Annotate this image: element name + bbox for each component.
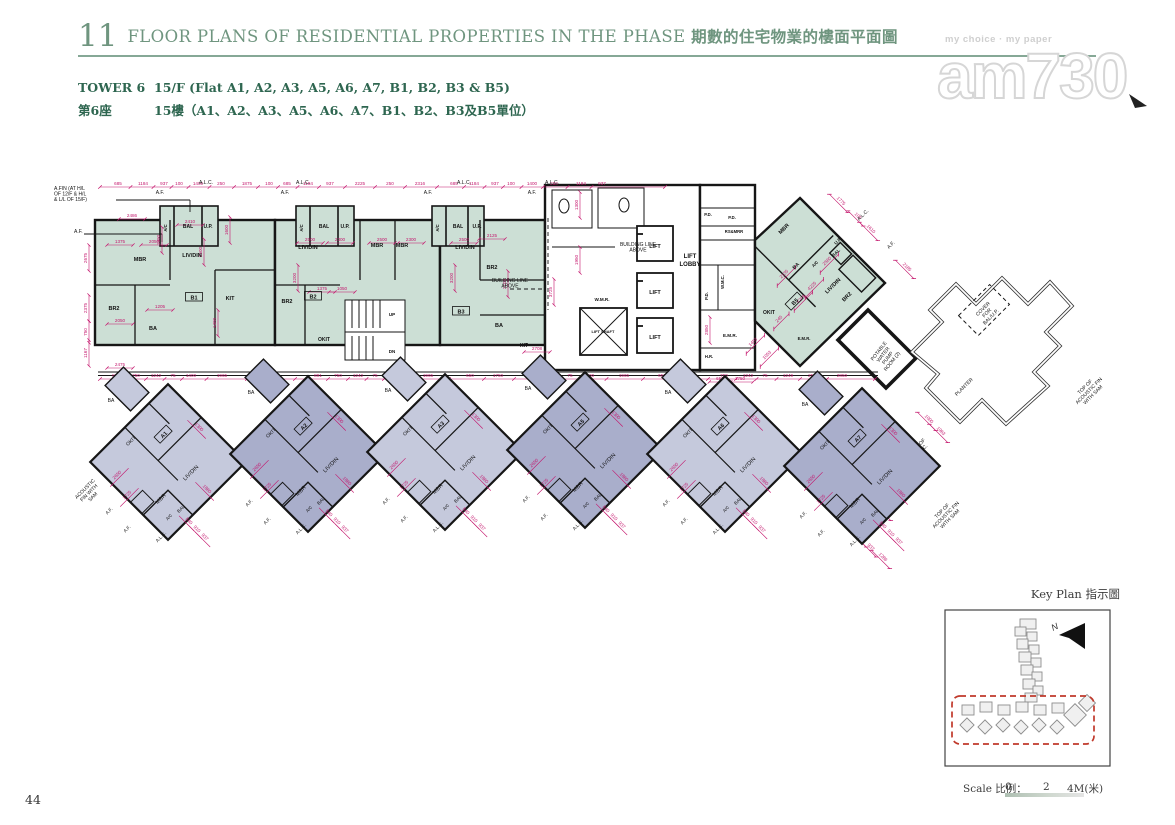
dimension-label: 100 [265,181,273,186]
dimension-label: 650 [466,373,474,378]
annotation-label: ABOVE [501,284,519,290]
dimension-label: 1053 [762,349,773,360]
dimension-label: 2500 [377,237,388,242]
dimension-label: 1286 [878,552,889,563]
annotation-label: A.F. [816,528,825,537]
unit-A5: BAOKITLIV/DINMBRBALA/C265017251860130084… [507,355,663,535]
scale-tick-0: 0 [1005,781,1012,793]
annotation-label: A.F. [281,190,290,196]
staircase [345,300,405,360]
room-label: A/C [163,224,168,231]
dimension-label: 1963 [936,426,947,437]
dimension-label: 1400 [527,181,538,186]
annotation: A.F. [74,229,83,235]
room-label: U.P. [203,224,213,230]
dimension-label: 2185 [902,262,913,273]
annotation-label: A.F. [122,524,131,533]
annotation: TOP OFACOUSTIC FINWITH SAM [928,496,965,533]
dimension-label: 1400 [186,373,197,378]
dimension-label: 2500 [305,237,316,242]
dimension-label: 1242 [353,373,364,378]
dimension-label: 3725 [548,286,553,297]
annotation-label: A.F. [798,510,807,519]
room-label: LIFT [649,290,661,296]
dimension-label: 2316 [415,181,426,186]
room-label: LIV/DIN [455,245,475,251]
dimension-label: 910 [193,524,202,533]
annotation-label: A.L.C. [296,180,310,186]
room-label: BA [525,386,532,392]
room-label: BA [248,390,255,396]
dimension-label: 937 [491,181,499,186]
floor-label-zh: 15樓（A1、A2、A3、A5、A6、A7、B1、B2、B3及B5單位） [154,100,534,119]
dimension-label: 1750 [735,376,746,381]
room-label: MBR [396,243,409,249]
annotation: A.L.C. [856,208,870,222]
page-title-en: FLOOR PLANS OF RESIDENTIAL PROPERTIES IN… [127,27,685,46]
room-label: LOBBY [680,262,701,268]
unit-label-text: B2 [309,295,316,301]
dimension-label: 1375 [317,286,328,291]
unit-A3: BAOKITLIV/DINMBRBALA/C265017251860130084… [367,357,523,537]
annotation: A.F. [156,190,165,196]
dimension-label: 2850 [837,373,848,378]
room-label: OKIT [318,337,330,343]
dimension-label: 1950 [574,254,579,265]
annotation-label: A.F. [539,512,548,521]
dimension-label: 750 [334,373,342,378]
dimension-label: 2475 [115,362,126,367]
dimension-label: 2500 [459,237,470,242]
room-label: BR2 [281,299,292,305]
dimension-label: 1000 [924,414,935,425]
annotation-label: A.L.C. [199,180,213,186]
dimension-label: 937 [618,520,627,529]
annotation-label: ABOVE [629,248,647,254]
page-number: 44 [25,792,41,807]
room-label: A/C [299,224,304,231]
annotation-label: A.F. [262,516,271,525]
unit-A1: BAOKITLIV/DINMBRBALA/C265017251860130084… [90,367,246,547]
scale-bar [1005,793,1084,797]
annotation: A.FIN (AT H/LOF 12/F & H/L& L/L OF 15/F) [54,186,87,203]
dimension-label: 685 [114,181,122,186]
annotation: A.L.C. [545,180,559,186]
room-label: LIV/DIN [298,245,318,251]
scale-tick-1: 2 [1043,781,1050,793]
room-label: LIFT [649,244,661,250]
dimension-label: 1965 [217,373,228,378]
annotation-label: A.F. [104,506,113,515]
dimension-label: 2300 [406,237,417,242]
dimension-label: 1965 [423,373,434,378]
annotation: A.L.C. [296,180,310,186]
section-number: 11 [78,18,117,54]
room-label: KIT [520,343,528,349]
dimension: 2185 [893,255,919,281]
annotation-label: A.F. [74,229,83,235]
room-label: BA [108,398,115,404]
annotation-label: A.F. [399,514,408,523]
room-label: RS&MRR [725,229,743,234]
room-label: UP [389,312,395,317]
dimension-label: 910 [610,512,619,521]
dimension-label: 840 [742,508,751,517]
room-label: MBR [371,243,384,249]
room-label: BAL [453,224,463,230]
dimension-label: 1300 [574,199,579,210]
dimension-label: 1775 [836,196,847,207]
annotation-label: A.L.C. [856,208,870,222]
room-label: LIFT [684,254,697,260]
dimension-label: 937 [598,181,606,186]
room-label: E.M.R. [798,336,811,341]
annotation: A.F. [281,190,290,196]
dimension-label: 840 [602,504,611,513]
room-label: W.M.C. [720,275,725,289]
dimension-label: 2708 [532,346,543,351]
logo-arrow-icon [1129,94,1147,108]
annotation-label: A.F. [528,190,537,196]
dimension-label: 840 [879,520,888,529]
dimension-label: 910 [333,516,342,525]
dimension-label: 75 [170,373,176,378]
dimension-label: 937 [201,532,210,541]
room-label: BA [802,402,809,408]
dimension-label: 100 [175,181,183,186]
dimension-label: 1205 [155,304,166,309]
dimension-label: 2850 [704,324,709,335]
annotation-label: A.F. [244,498,253,507]
dimension-label: 75 [762,373,768,378]
dimension-label: 840 [325,508,334,517]
dimension-label: 3200 [292,272,297,283]
annotation: A.F. [886,240,896,250]
dimension-label: 1375 [115,239,126,244]
dimension-label: 2486 [127,213,138,218]
dimension: 2475 [105,362,134,370]
dimension-label: 937 [341,524,350,533]
room-label: H.R. [705,354,713,359]
dimension-label: 1242 [151,373,162,378]
dimension-label: 750 [83,328,88,336]
dimension-label: 1610 [866,224,877,235]
dimension-label: 910 [887,528,896,537]
annotation: TOP OFACOUSTIC FINWITH SAM [1071,372,1108,409]
dimension: 2675 [83,243,91,272]
dimension-label: 1600 [224,224,229,235]
dimension-label: 1184 [138,181,148,186]
room-label: DN [389,349,396,354]
unit-A2: BAOKITLIV/DINMBRBALA/C265017251860130084… [230,359,386,539]
unit-label-text: B3 [457,310,464,316]
dimension-label: 2050 [115,318,126,323]
unit-label-text: B1 [190,296,197,302]
dimension-label: 840 [462,506,471,515]
room-label: BR2 [486,265,497,271]
dimension-label: 1965 [619,373,630,378]
dimension-label: 1750 [493,373,504,378]
annotation: A.F. [424,190,433,196]
annotation-label: A.F. [521,494,530,503]
dimension-label: 840 [185,516,194,525]
floor-label-en: 15/F (Flat A1, A2, A3, A5, A6, A7, B1, B… [154,80,510,95]
annotation-label: A.F. [156,190,165,196]
dimension: 2375 [83,293,91,322]
dimension-label: 910 [470,514,479,523]
room-label: P.D. [728,215,736,220]
annotation: A.F. [528,190,537,196]
annotation-label: A.F. [886,240,896,250]
floor-plan: 6851184937100140025018751006851184937222… [40,160,1140,590]
room-label: MBR [134,257,147,263]
room-label: BA [665,390,672,396]
room-label: A/C [435,224,440,231]
dimension-label: 937 [478,522,487,531]
room-label: LIFT SHAFT [592,329,615,334]
page-header: 11FLOOR PLANS OF RESIDENTIAL PROPERTIES … [78,18,898,54]
am730-watermark: my choice · my paper am730 [933,16,1173,116]
dimension-label: 937 [160,181,168,186]
room-label: P.D. [704,212,712,217]
room-label: W.M.R. [594,297,609,302]
dimension-label: 891 [314,373,322,378]
dimension-label: 250 [217,181,225,186]
dimension-label: 3200 [449,272,454,283]
dimension-label: 2225 [355,181,366,186]
room-label: BR2 [108,306,119,312]
dimension-label: 2125 [487,233,498,238]
room-label: E.M.R. [723,333,737,338]
dimension-label: 1249 [783,373,794,378]
annotation-label: A.F. [424,190,433,196]
dimension-label: 2375 [83,302,88,313]
tower-label-en: TOWER 6 [78,80,154,95]
room-label: BA [149,326,157,332]
unit-A7: BAOKITLIV/DINMBRBALA/C265017251860130084… [784,371,940,551]
planter-outline [912,278,1072,424]
room-label: LIFT [649,335,661,341]
room-label: BAL [319,224,329,230]
dimension: 1053 [755,343,781,369]
dimension-label: 910 [750,516,759,525]
dimension-label: 1050 [337,286,348,291]
dimension-label: 937 [895,536,904,545]
dimension-label: 2675 [83,252,88,263]
annotation: PLANTER [954,377,975,398]
dimension-label: 2300 [335,237,346,242]
annotation: A.L.C. [457,180,471,186]
room-label: U.P. [472,224,482,230]
room-label: U.P. [340,224,350,230]
tower-label-zh: 第6座 [78,100,154,119]
dimension-label: 75 [567,373,573,378]
am730-logo: am730 [933,16,1173,116]
dimension-label: 250 [386,181,394,186]
annotation-label: A.F. [381,496,390,505]
dimension-label: 937 [326,181,334,186]
unit-A6: BAOKITLIV/DINMBRBALA/C265017251860130084… [647,359,803,539]
watermark-tagline: my choice · my paper [945,34,1052,45]
dimension-label: 1400 [212,317,217,328]
dimension-label: 75 [372,373,378,378]
annotation-label: A.F. [679,516,688,525]
annotation-label: & L/L OF 15/F) [54,197,87,203]
room-label: OKIT [763,310,775,316]
room-label: KIT [226,296,236,302]
annotation-label: A.L.C. [457,180,471,186]
annotation-label: A.L.C. [545,180,559,186]
annotation-label: PLANTER [954,377,975,398]
dimension-label: 1167 [83,348,88,358]
room-label: BA [495,323,503,329]
brochure-page: 11FLOOR PLANS OF RESIDENTIAL PROPERTIES … [0,0,1175,825]
room-label: BAL [183,224,193,230]
dimension-label: 100 [507,181,515,186]
am730-logo-text: am730 [937,40,1126,112]
dimension-label: 1184 [576,181,586,186]
room-label: P.D. [704,292,709,300]
annotation: A.L.C. [199,180,213,186]
page-title-zh: 期數的住宅物業的樓面平面圖 [691,27,898,46]
dimension-label: 685 [283,181,291,186]
dimension-label: 1875 [242,181,253,186]
annotation: ACOUSTICFIN WITHSAM [74,478,105,509]
room-label: BA [385,388,392,394]
dimension-chain: 8917501242751400196548508917501242751400… [98,373,877,381]
tower-info: TOWER 6 15/F (Flat A1, A2, A3, A5, A6, A… [78,80,534,124]
annotation-label: A.F. [661,498,670,507]
room-label: LIV/DIN [182,253,202,259]
dimension-label: 2050 [149,239,160,244]
dimension-label: 937 [758,524,767,533]
